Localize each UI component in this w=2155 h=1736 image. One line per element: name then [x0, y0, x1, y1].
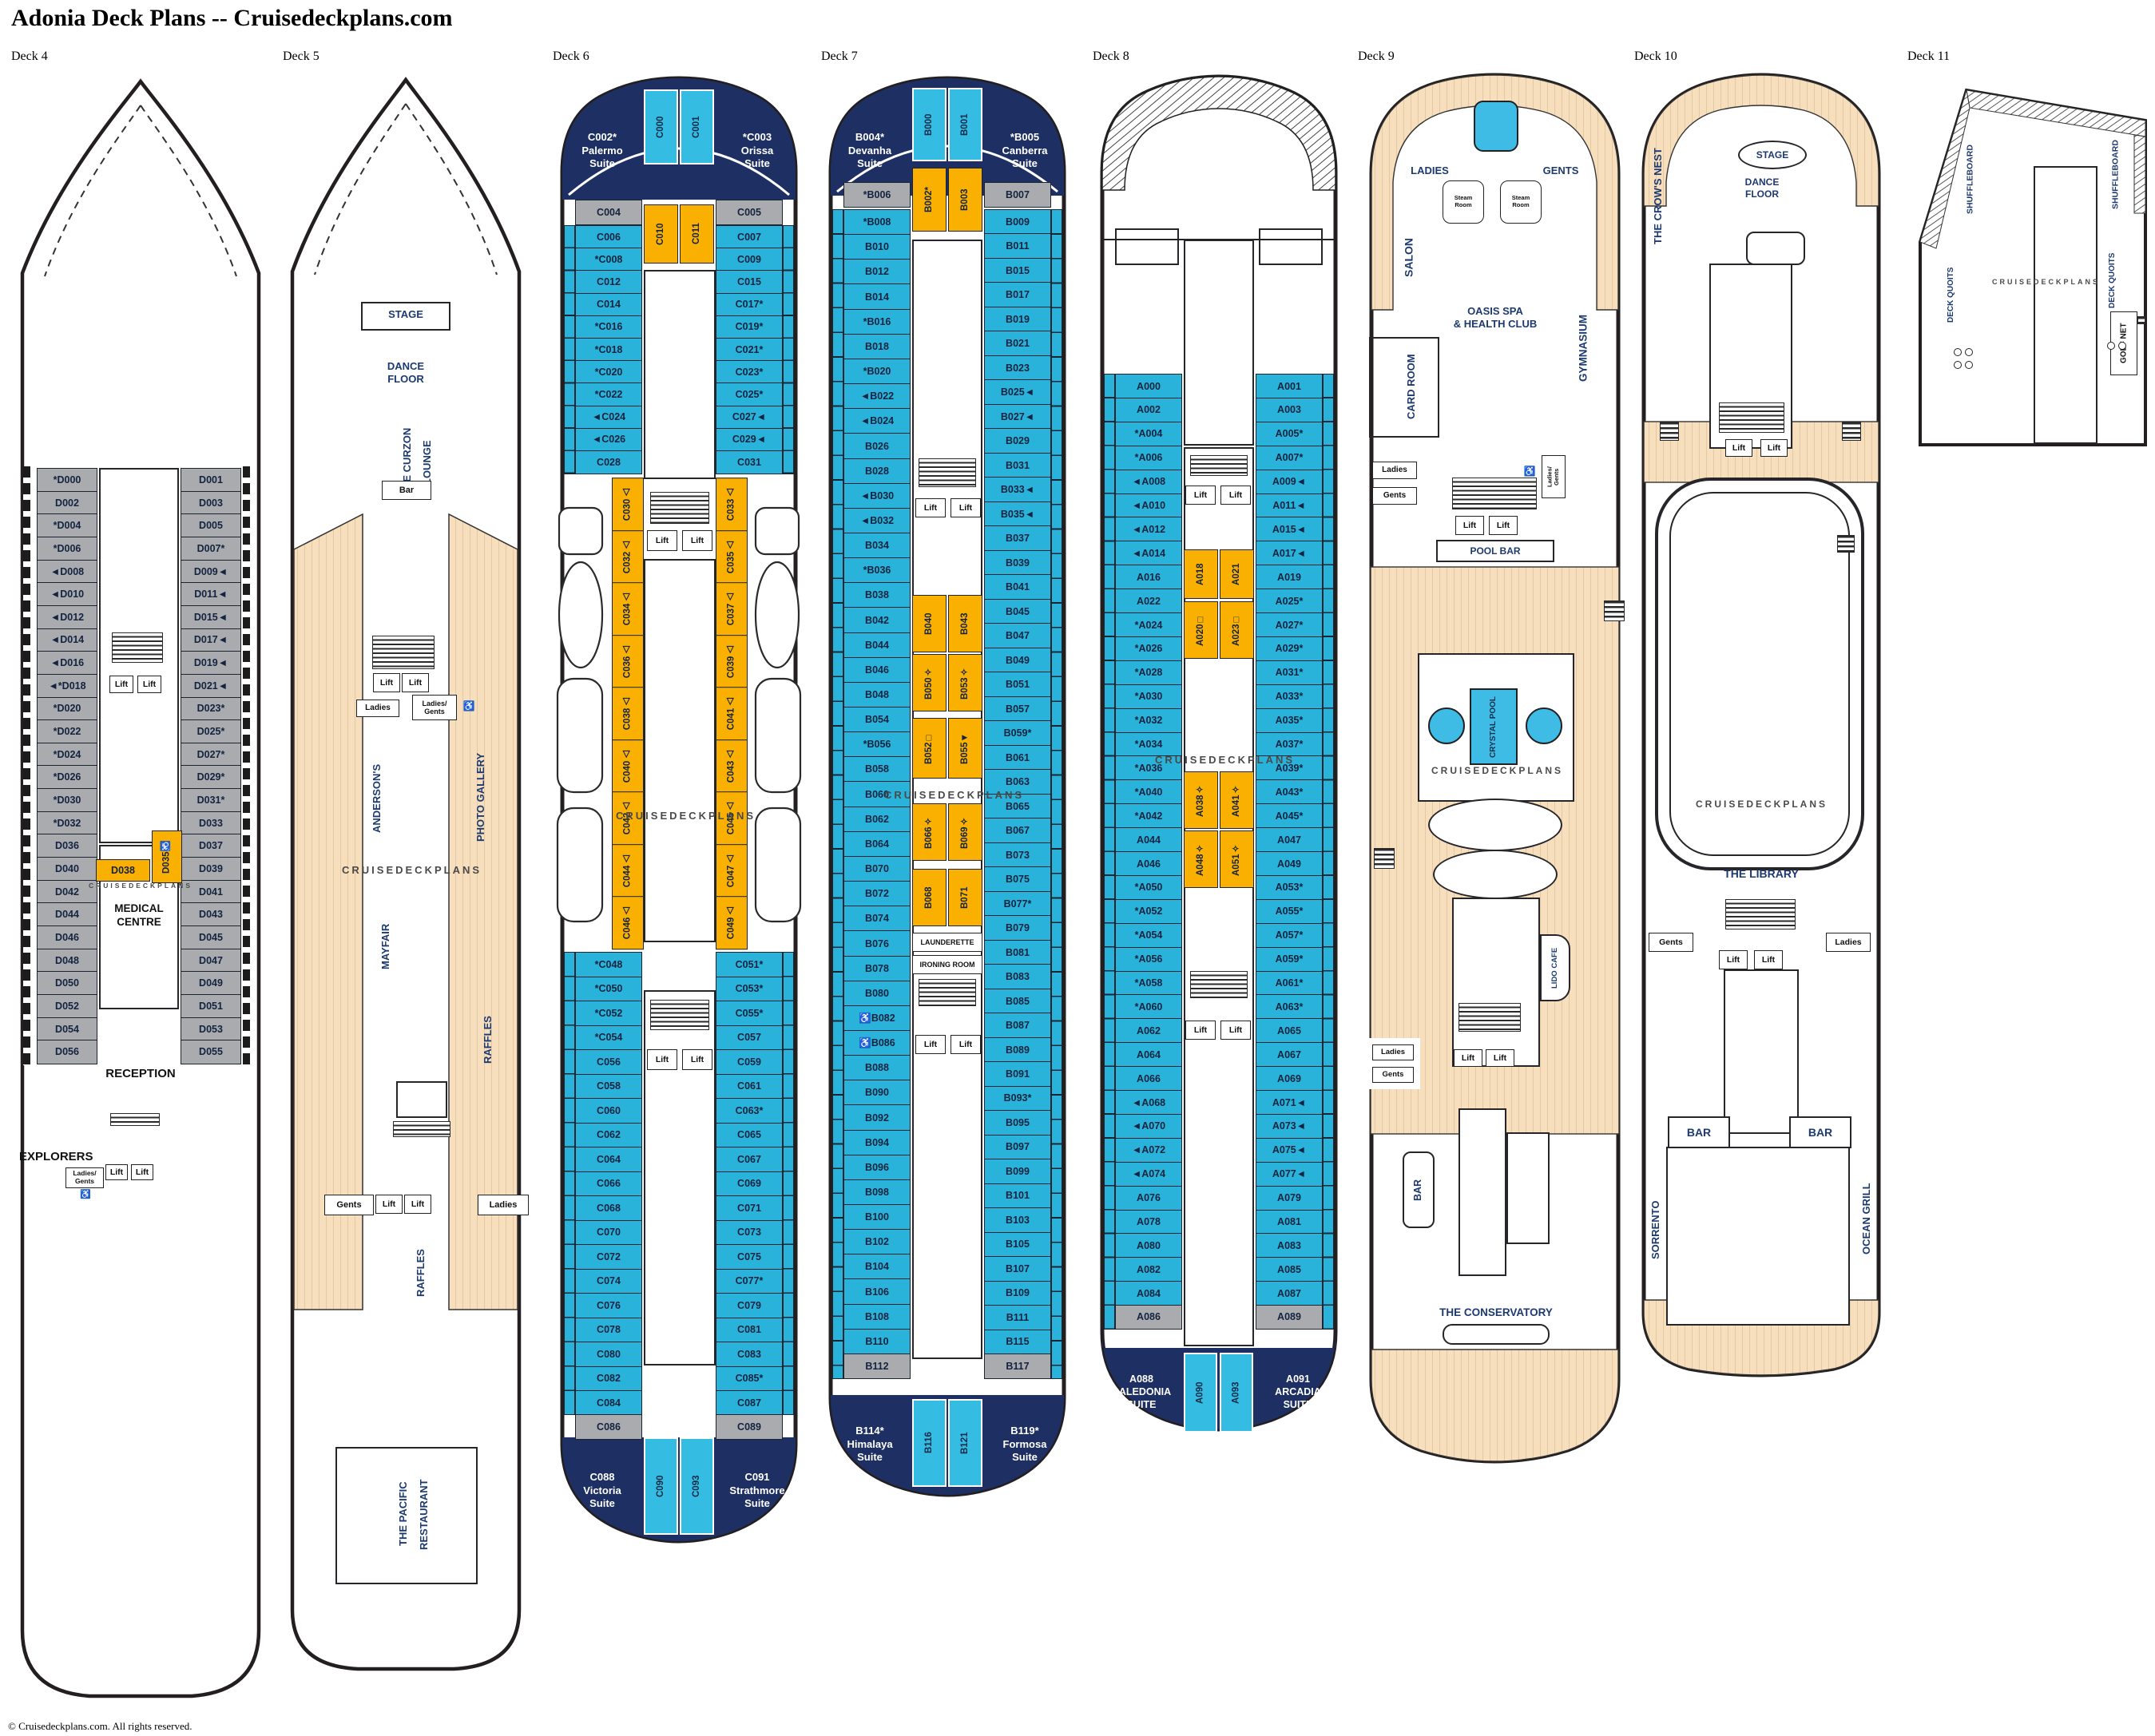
watermark: CRUISEDECKPLANS: [1992, 278, 2082, 291]
quoits-ring: [1954, 348, 1962, 356]
shuffleboard-label: SHUFFLEBOARD: [2104, 123, 2128, 227]
deck-11: SHUFFLEBOARDSHUFFLEBOARDDECK QUOITSDECK …: [0, 0, 2155, 1736]
shuffleboard-label: SHUFFLEBOARD: [1959, 128, 1982, 232]
quoits-ring: [1954, 361, 1962, 369]
quoits-ring: [2107, 342, 2115, 350]
quoits-ring: [1965, 348, 1973, 356]
deck-quoits-label: DECK QUOITS: [1938, 251, 1965, 339]
funnel-casing: [2034, 166, 2097, 444]
adonia-deck-plans: Adonia Deck Plans -- Cruisedeckplans.com…: [0, 0, 2155, 1736]
vent-hatch: [2137, 316, 2145, 324]
quoits-ring: [2118, 342, 2126, 350]
quoits-ring: [1965, 361, 1973, 369]
